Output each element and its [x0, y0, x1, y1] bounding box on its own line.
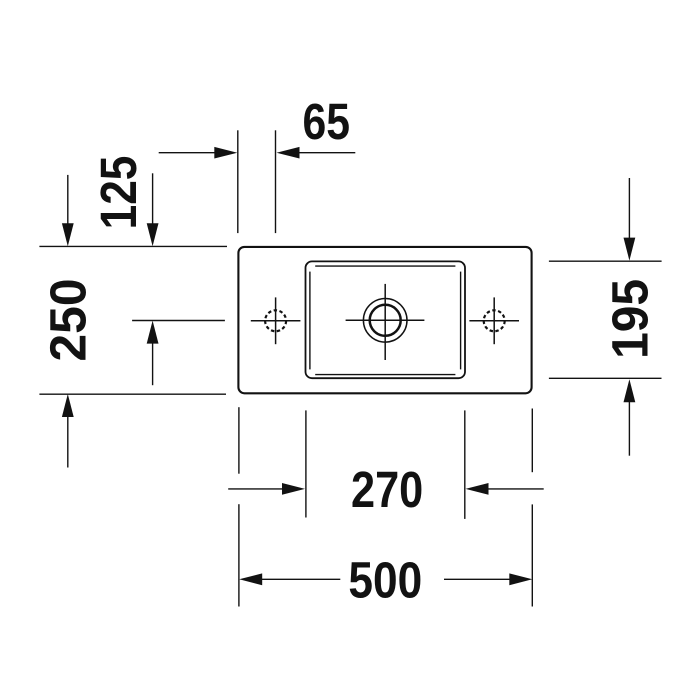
svg-text:125: 125: [90, 156, 147, 230]
svg-text:65: 65: [303, 93, 351, 150]
svg-text:500: 500: [348, 551, 422, 608]
svg-text:195: 195: [601, 279, 658, 359]
svg-text:250: 250: [40, 278, 97, 361]
svg-text:270: 270: [351, 461, 423, 518]
